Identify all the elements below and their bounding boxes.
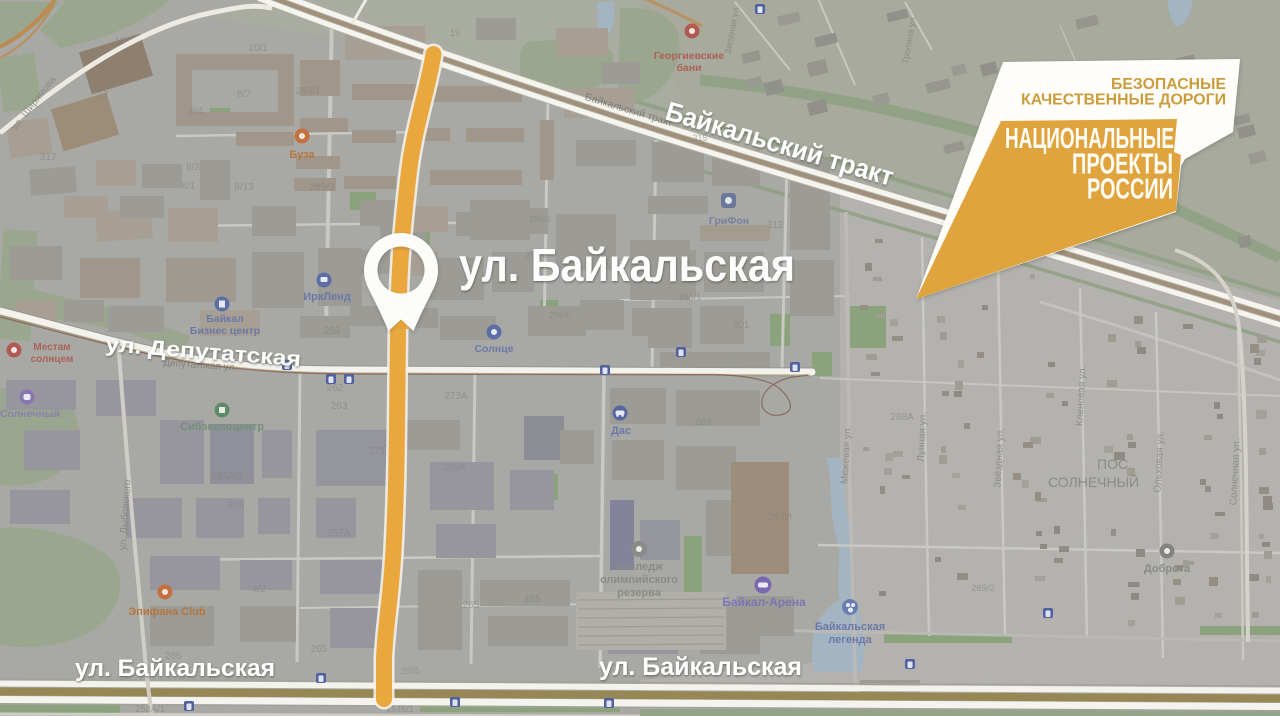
svg-text:8/4: 8/4 (189, 106, 203, 117)
svg-text:262: 262 (327, 383, 344, 394)
svg-text:ул. Байкальская: ул. Байкальская (75, 655, 275, 682)
svg-text:Сибэкспоцентр: Сибэкспоцентр (180, 421, 264, 433)
svg-text:258А/1: 258А/1 (135, 704, 165, 715)
svg-text:313: 313 (767, 220, 784, 231)
svg-text:Солнце: Солнце (474, 343, 513, 355)
svg-text:269А: 269А (444, 462, 465, 472)
svg-text:солнцем: солнцем (31, 354, 74, 365)
svg-text:8/13: 8/13 (234, 182, 254, 193)
svg-text:Байкальская: Байкальская (815, 621, 885, 633)
svg-text:Георгиевские: Георгиевские (654, 50, 724, 62)
svg-text:265: 265 (311, 644, 328, 655)
svg-text:4/2: 4/2 (252, 584, 266, 595)
svg-text:Доброта: Доброта (1144, 563, 1191, 575)
svg-text:8/1: 8/1 (181, 181, 195, 192)
svg-text:ИркЛенд: ИркЛенд (303, 291, 351, 303)
svg-text:257А: 257А (327, 528, 351, 539)
svg-text:295/1: 295/1 (679, 292, 702, 302)
svg-text:КАЧЕСТВЕННЫЕ ДОРОГИ: КАЧЕСТВЕННЫЕ ДОРОГИ (1021, 92, 1226, 109)
svg-text:Местам: Местам (33, 342, 70, 353)
svg-text:17: 17 (97, 90, 109, 101)
svg-text:268А: 268А (890, 412, 914, 423)
svg-text:Колледж: Колледж (615, 561, 663, 573)
svg-text:253А/1: 253А/1 (211, 471, 243, 482)
svg-text:301: 301 (733, 320, 750, 331)
svg-text:СОЛНЕЧНЫЙ: СОЛНЕЧНЫЙ (1048, 473, 1139, 490)
svg-text:289/3: 289/3 (309, 182, 334, 193)
svg-text:269: 269 (695, 417, 712, 428)
svg-text:295/6: 295/6 (549, 310, 572, 320)
svg-text:легенда: легенда (828, 634, 872, 646)
svg-text:255: 255 (228, 500, 245, 511)
svg-text:Буза: Буза (289, 149, 315, 161)
svg-text:265: 265 (524, 594, 541, 605)
svg-text:Байкал: Байкал (206, 313, 244, 325)
svg-text:ул. Байкальская: ул. Байкальская (599, 653, 802, 681)
svg-text:317: 317 (40, 152, 57, 163)
svg-text:БЕЗОПАСНЫЕ: БЕЗОПАСНЫЕ (1111, 76, 1226, 93)
svg-text:265: 265 (463, 600, 480, 611)
svg-text:18: 18 (115, 36, 125, 46)
svg-text:РОССИИ: РОССИИ (1087, 174, 1173, 206)
svg-text:2655: 2655 (400, 666, 420, 676)
svg-text:Дас: Дас (611, 425, 631, 437)
svg-text:289/1: 289/1 (295, 86, 320, 97)
svg-text:19: 19 (450, 28, 460, 38)
svg-text:295/2: 295/2 (529, 214, 552, 224)
svg-text:резерва: резерва (617, 587, 662, 599)
svg-text:Бизнес центр: Бизнес центр (190, 325, 260, 337)
svg-text:ул. Байкальская: ул. Байкальская (459, 239, 795, 291)
svg-text:263: 263 (331, 401, 348, 412)
svg-text:Байкал-Арена: Байкал-Арена (722, 595, 806, 609)
svg-text:259: 259 (324, 326, 341, 337)
svg-text:бани: бани (676, 62, 701, 74)
svg-text:8/7: 8/7 (237, 89, 251, 100)
svg-text:269/2: 269/2 (971, 583, 995, 594)
svg-text:10/1: 10/1 (248, 43, 268, 54)
svg-text:8/2: 8/2 (186, 162, 200, 173)
svg-text:Эпифана Club: Эпифана Club (128, 606, 206, 618)
svg-text:273А: 273А (444, 391, 468, 402)
svg-text:олимпийского: олимпийского (600, 574, 678, 586)
svg-text:Солнечный: Солнечный (0, 408, 60, 420)
svg-text:267И: 267И (768, 512, 792, 523)
svg-text:ГриФон: ГриФон (709, 215, 749, 227)
svg-text:ПОС.: ПОС. (1097, 456, 1132, 472)
